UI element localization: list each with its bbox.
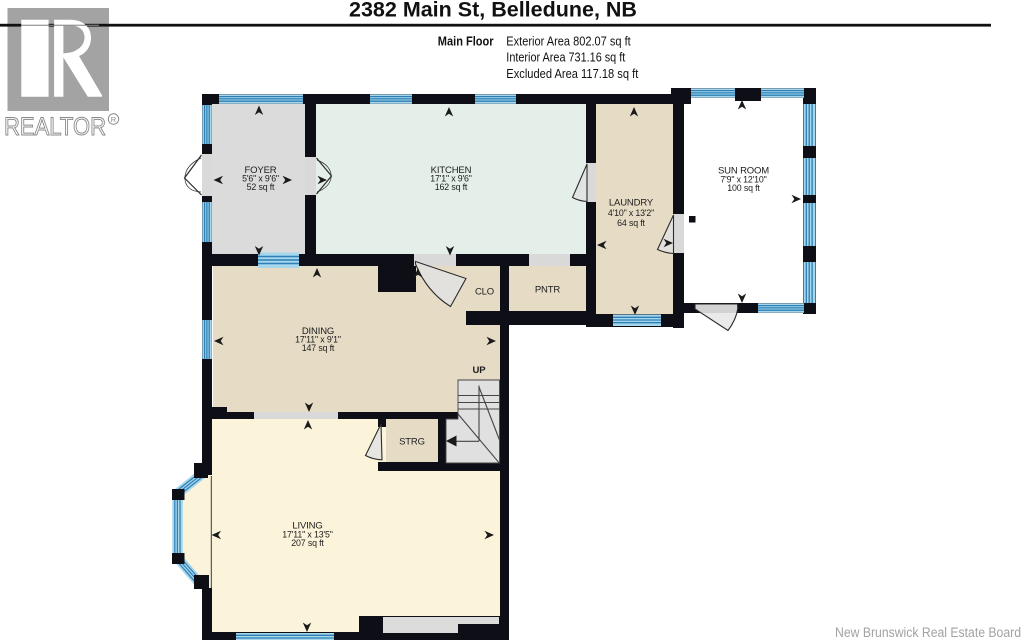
svg-text:100 sq ft: 100 sq ft xyxy=(727,183,760,193)
svg-text:STRG: STRG xyxy=(399,437,425,448)
svg-text:52 sq ft: 52 sq ft xyxy=(247,182,275,192)
svg-text:PNTR: PNTR xyxy=(535,285,561,296)
svg-text:Interior Area 731.16 sq ft: Interior Area 731.16 sq ft xyxy=(506,50,625,65)
svg-text:New Brunswick Real Estate Boar: New Brunswick Real Estate Board xyxy=(835,625,1021,640)
svg-text:Excluded Area 117.18 sq ft: Excluded Area 117.18 sq ft xyxy=(506,66,638,81)
svg-text:Main Floor: Main Floor xyxy=(438,33,494,48)
svg-text:REALTOR: REALTOR xyxy=(4,113,106,141)
svg-text:64 sq ft: 64 sq ft xyxy=(617,218,645,228)
svg-text:207 sq ft: 207 sq ft xyxy=(291,538,324,548)
svg-text:UP: UP xyxy=(473,365,487,376)
svg-text:Exterior Area 802.07 sq ft: Exterior Area 802.07 sq ft xyxy=(506,33,631,48)
svg-text:2382 Main St, Belledune, NB: 2382 Main St, Belledune, NB xyxy=(349,0,637,22)
svg-text:162 sq ft: 162 sq ft xyxy=(435,182,468,192)
svg-text:147 sq ft: 147 sq ft xyxy=(302,343,335,353)
svg-text:R: R xyxy=(111,115,117,124)
svg-text:CLO: CLO xyxy=(475,287,494,298)
svg-text:4'10" x 13'2": 4'10" x 13'2" xyxy=(608,208,654,218)
svg-text:LAUNDRY: LAUNDRY xyxy=(609,198,654,209)
